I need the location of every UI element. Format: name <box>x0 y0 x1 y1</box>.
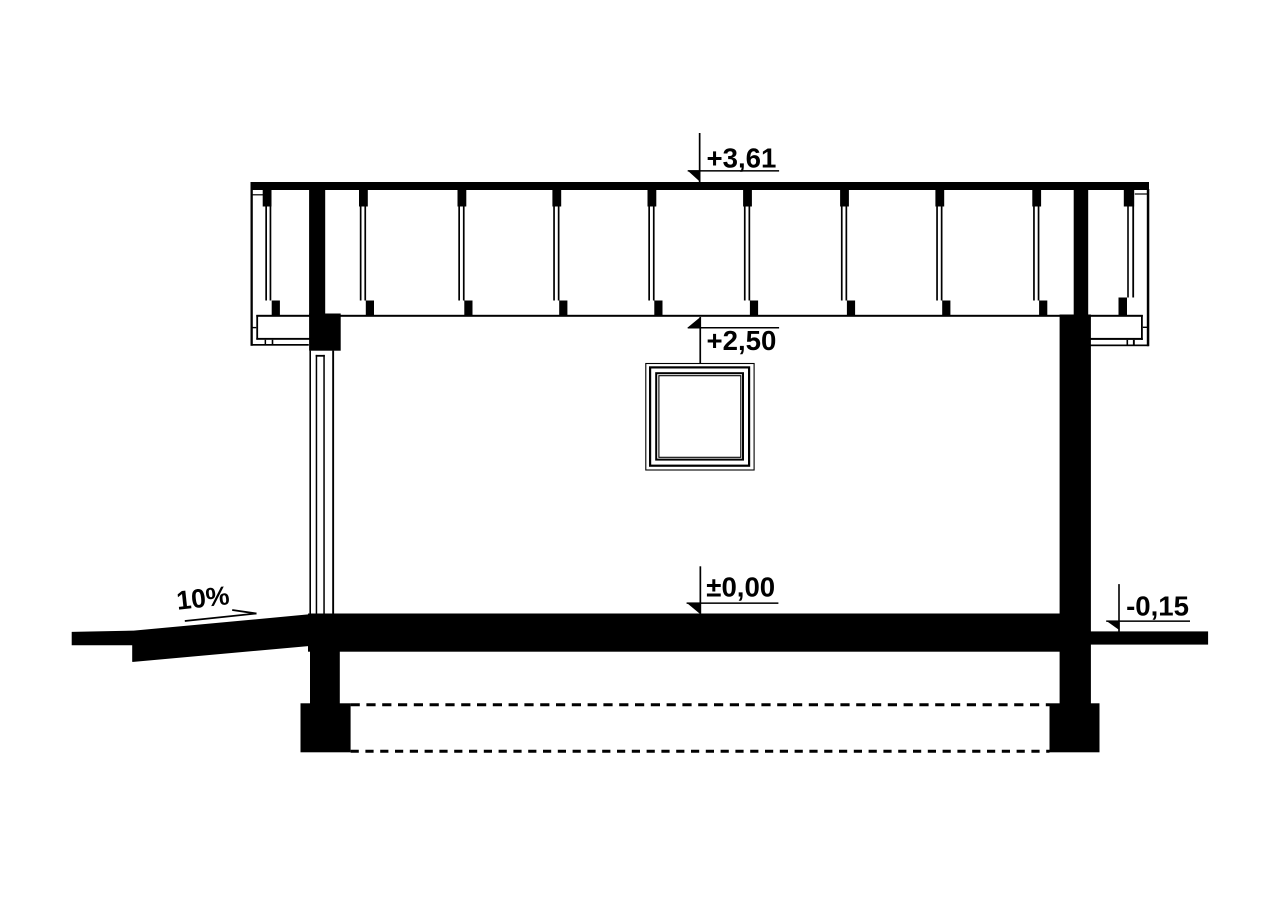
svg-text:±0,00: ±0,00 <box>706 572 775 603</box>
svg-text:+3,61: +3,61 <box>707 143 777 174</box>
svg-text:+2,50: +2,50 <box>707 325 777 356</box>
svg-text:-0,15: -0,15 <box>1126 590 1189 621</box>
svg-text:10%: 10% <box>175 580 231 616</box>
